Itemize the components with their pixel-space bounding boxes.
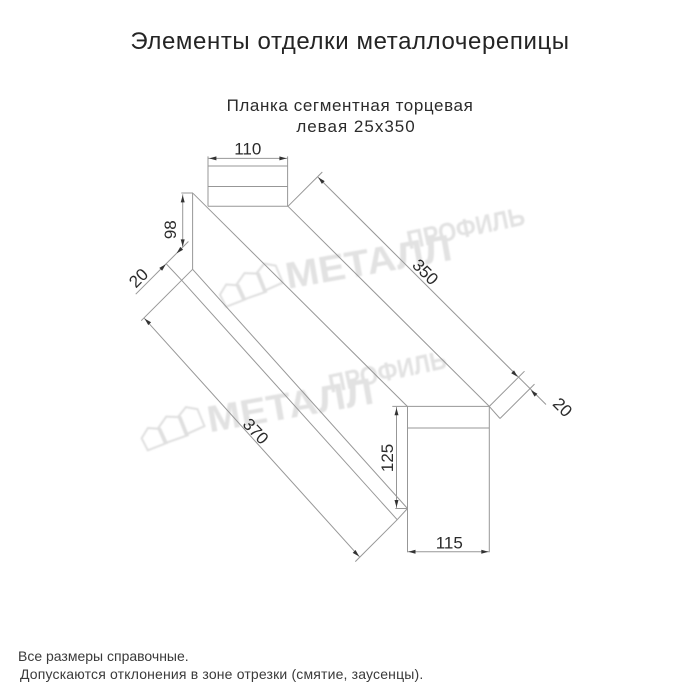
svg-text:ПРОФИЛЬ: ПРОФИЛЬ [326,344,450,398]
svg-text:125: 125 [378,444,397,472]
svg-text:98: 98 [161,220,180,239]
svg-text:110: 110 [234,140,261,159]
svg-text:115: 115 [436,534,463,553]
svg-text:20: 20 [125,265,152,292]
svg-text:ПРОФИЛЬ: ПРОФИЛЬ [404,201,528,255]
svg-text:20: 20 [549,394,576,421]
